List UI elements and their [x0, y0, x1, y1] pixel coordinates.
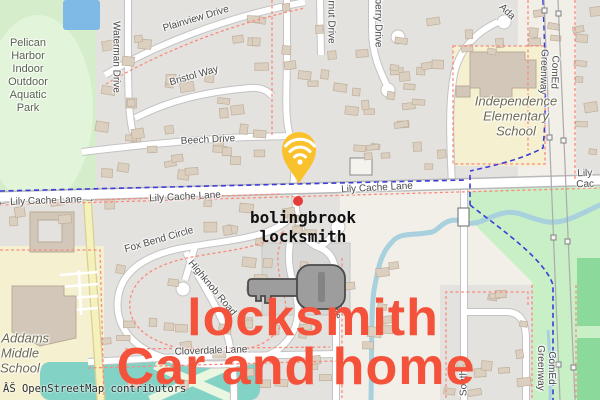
street-label-comed-top: ComEd Greenway: [537, 46, 561, 98]
business-name-label: bolingbrook locksmith: [250, 209, 356, 246]
street-label-walnut: rnut Drive: [326, 0, 337, 43]
map-canvas[interactable]: Plainview Drive Waterman Drive Bristol W…: [0, 0, 600, 400]
street-label-comed-bottom: ComEd Greenway: [535, 341, 557, 395]
bridge: [458, 208, 469, 226]
osm-attribution: ÂŠ OpenStreetMap contributors: [3, 383, 186, 395]
street-label-berry: berry Drive: [373, 0, 384, 47]
park-label: Pelican Harbor Indoor Outdoor Aquatic Pa…: [8, 37, 48, 115]
scrub-patch: [577, 258, 600, 326]
outlined-building: [350, 158, 372, 175]
street-label-lily-right: Lily Cac: [576, 168, 595, 191]
elementary-school-label: Independence Elementary School: [475, 95, 557, 140]
pool-water: [63, 0, 100, 30]
street-label-waterman: Waterman Drive: [111, 21, 122, 93]
middle-school-label: e Addams Middle School: [0, 332, 49, 377]
